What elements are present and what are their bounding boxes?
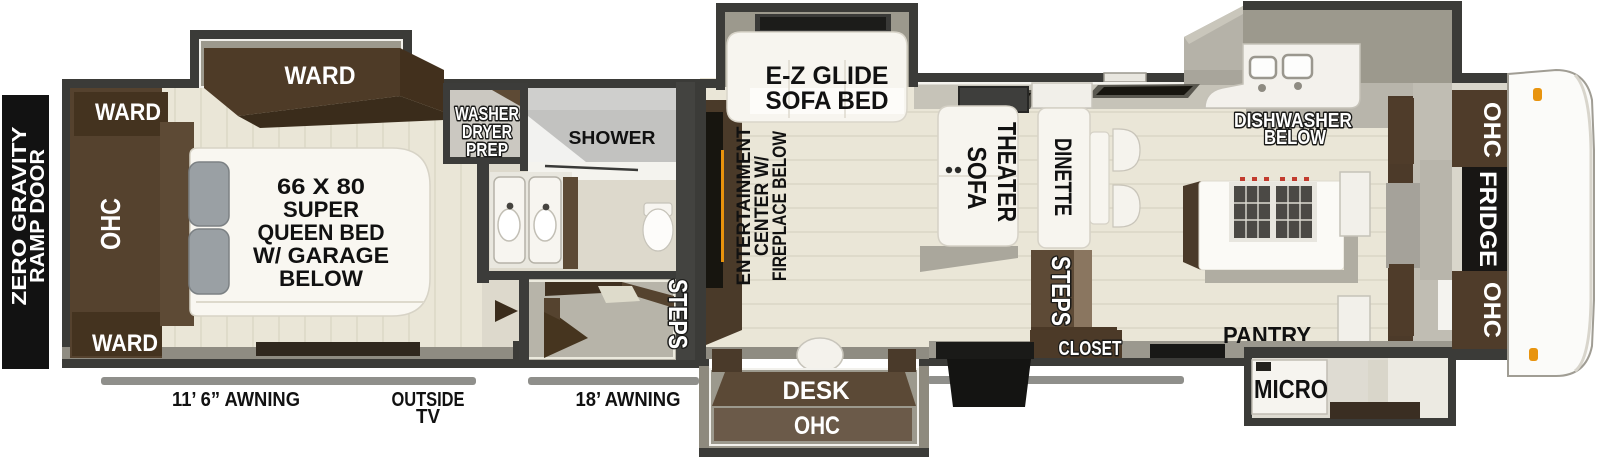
svg-text:SOFA BED: SOFA BED xyxy=(766,87,889,115)
svg-text:PREP: PREP xyxy=(466,140,508,160)
svg-text:STEPS: STEPS xyxy=(1046,256,1076,326)
svg-text:DESK: DESK xyxy=(783,377,850,405)
svg-text:E-Z GLIDE: E-Z GLIDE xyxy=(766,62,889,90)
svg-text:WARD: WARD xyxy=(92,330,158,357)
svg-text:TV: TV xyxy=(416,406,441,428)
svg-text:QUEEN BED: QUEEN BED xyxy=(258,220,385,245)
svg-text:DINETTE: DINETTE xyxy=(1049,138,1076,216)
svg-text:BELOW: BELOW xyxy=(1264,127,1326,149)
svg-text:W/ GARAGE: W/ GARAGE xyxy=(253,243,389,268)
svg-text:BELOW: BELOW xyxy=(279,266,363,291)
svg-text:SUPER: SUPER xyxy=(283,197,359,222)
svg-text:WASHER: WASHER xyxy=(455,104,519,124)
svg-text:OHC: OHC xyxy=(794,412,840,440)
svg-text:MICRO: MICRO xyxy=(1254,374,1328,404)
svg-text:RAMP DOOR: RAMP DOOR xyxy=(26,149,49,283)
svg-text:WARD: WARD xyxy=(95,99,161,126)
svg-text:66 X 80: 66 X 80 xyxy=(277,174,365,199)
svg-text:18’ AWNING: 18’ AWNING xyxy=(576,389,681,411)
svg-text:SOFA: SOFA xyxy=(962,147,992,210)
svg-text:DRYER: DRYER xyxy=(462,122,512,142)
svg-text:OHC: OHC xyxy=(1478,282,1505,338)
svg-text:11’ 6” AWNING: 11’ 6” AWNING xyxy=(172,389,300,411)
svg-text:FIREPLACE BELOW: FIREPLACE BELOW xyxy=(770,131,791,281)
svg-text:OHC: OHC xyxy=(95,198,126,250)
svg-text:WARD: WARD xyxy=(285,62,356,90)
svg-text:OHC: OHC xyxy=(1478,102,1505,158)
svg-text:SHOWER: SHOWER xyxy=(569,127,656,148)
svg-text:STEPS: STEPS xyxy=(663,279,693,349)
svg-text:CLOSET: CLOSET xyxy=(1059,338,1122,360)
svg-text:THEATER: THEATER xyxy=(992,122,1022,222)
svg-text:FRIDGE: FRIDGE xyxy=(1474,171,1501,267)
